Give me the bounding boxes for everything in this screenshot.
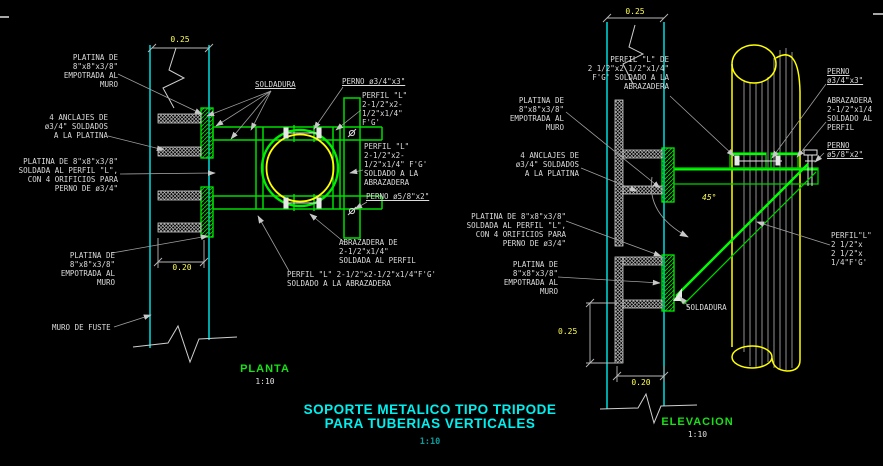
elev-leaders bbox=[558, 84, 830, 308]
plan-view-geometry bbox=[108, 44, 382, 362]
plan-dim-bottom-value: 0.20 bbox=[168, 263, 196, 272]
plan-bottom-break bbox=[133, 326, 237, 362]
plan-clamp-circle bbox=[262, 130, 338, 206]
drawing-title: SOPORTE METALICO TIPO TRIPODE PARA TUBER… bbox=[285, 403, 575, 431]
elev-anchor-bars bbox=[615, 100, 662, 363]
drawing-title-line2: PARA TUBERIAS VERTICALES bbox=[325, 416, 536, 431]
plan-view-title: PLANTA bbox=[230, 363, 300, 375]
plan-view-scale: 1:10 bbox=[230, 377, 300, 386]
elev-pipe-hatch bbox=[744, 48, 792, 370]
plan-wall-plates bbox=[201, 108, 213, 237]
plan-label-perno34: PERNO ø3/4"x3" bbox=[342, 77, 405, 86]
elev-label-perno34: PERNO ø3/4"x3" bbox=[827, 67, 863, 85]
plan-dim-top bbox=[148, 44, 213, 52]
elev-label-perno58: PERNO ø5/8"x2" bbox=[827, 141, 863, 159]
elev-dim-left bbox=[586, 299, 618, 367]
plan-label-perfil-bottom: PERFIL "L" 2-1/2"x2-1/2"x1/4"F'G' SOLDAD… bbox=[287, 270, 436, 288]
plan-leaders bbox=[108, 74, 367, 327]
drawing-geometry bbox=[0, 0, 883, 466]
elev-dim-left-value: 0.25 bbox=[558, 327, 577, 336]
elev-pipe bbox=[732, 45, 800, 371]
elev-pipe-outline bbox=[732, 45, 800, 371]
plan-label-perno58: PERNO ø5/8"x2" bbox=[366, 192, 429, 201]
elev-label-platina-soldada: PLATINA DE 8"x8"x3/8" SOLDADA AL PERFIL … bbox=[467, 212, 566, 248]
elev-label-platina-bottom: PLATINA DE 8"x8"x3/8" EMPOTRADA AL MURO bbox=[504, 260, 558, 296]
plan-label-muro-fuste: MURO DE FUSTE bbox=[52, 323, 111, 332]
elev-label-abrazadera: ABRAZADERA 2-1/2"x1/4 SOLDADO AL PERFIL bbox=[827, 96, 872, 132]
elev-label-platina-top: PLATINA DE 8"x8"x3/8" EMPOTRADA AL MURO bbox=[510, 96, 564, 132]
plan-screw-bottom bbox=[348, 207, 356, 215]
plan-label-abrazadera: ABRAZADERA DE 2-1/2"x1/4" SOLDADA AL PER… bbox=[339, 238, 416, 265]
plan-label-platina-soldada: PLATINA DE 8"x8"x3/8" SOLDADA AL PERFIL … bbox=[19, 157, 118, 193]
drawing-border-ticks bbox=[0, 14, 883, 17]
plan-label-perfil-top: PERFIL "L" 2-1/2"x2- 1/2"x1/4" F'G' bbox=[362, 91, 407, 127]
plan-label-anclajes: 4 ANCLAJES DE ø3/4" SOLDADOS A LA PLATIN… bbox=[45, 113, 108, 140]
drawing-title-scale: 1:10 bbox=[285, 437, 575, 447]
plan-pipe-circle bbox=[267, 135, 334, 202]
plan-frame bbox=[213, 98, 382, 238]
elev-label-perfil-top: PERFIL "L" DE 2 1/2"x2 1/2"x1/4" F'G' SO… bbox=[588, 55, 669, 91]
plan-screw-top bbox=[348, 129, 356, 137]
plan-top-break bbox=[163, 48, 184, 108]
elev-dim-bottom-value: 0.20 bbox=[626, 378, 656, 387]
plan-label-soldadura: SOLDADURA bbox=[255, 80, 296, 89]
plan-label-platina-bottom: PLATINA DE 8"x8"x3/8" EMPOTRADA AL MURO bbox=[61, 251, 115, 287]
plan-label-perfil-soldado: PERFIL "L" 2-1/2"x2- 1/2"x1/4" F'G' SOLD… bbox=[364, 142, 427, 187]
elev-view-scale: 1:10 bbox=[655, 430, 740, 439]
drawing-title-line1: SOPORTE METALICO TIPO TRIPODE bbox=[304, 402, 557, 417]
cad-drawing-canvas: 0.25 0.20 PLATINA DE 8"x8"x3/8" EMPOTRAD… bbox=[0, 0, 883, 466]
elev-angle-value: 45° bbox=[702, 193, 716, 202]
elev-label-soldadura: SOLDADURA bbox=[686, 303, 727, 312]
elev-view-title: ELEVACION bbox=[655, 416, 740, 428]
elev-dim-top-value: 0.25 bbox=[620, 7, 650, 16]
elev-clamp-bolt bbox=[735, 156, 782, 165]
elev-label-anclajes: 4 ANCLAJES DE ø3/4" SOLDADOS A LA PLATIN… bbox=[516, 151, 579, 178]
plan-dim-top-value: 0.25 bbox=[168, 35, 192, 44]
plan-label-platina-top: PLATINA DE 8"x8"x3/8" EMPOTRADA AL MURO bbox=[64, 53, 118, 89]
elev-label-perfil-brace: PERFIL"L" 2 1/2"x 2 1/2"x 1/4"F'G' bbox=[831, 231, 872, 267]
